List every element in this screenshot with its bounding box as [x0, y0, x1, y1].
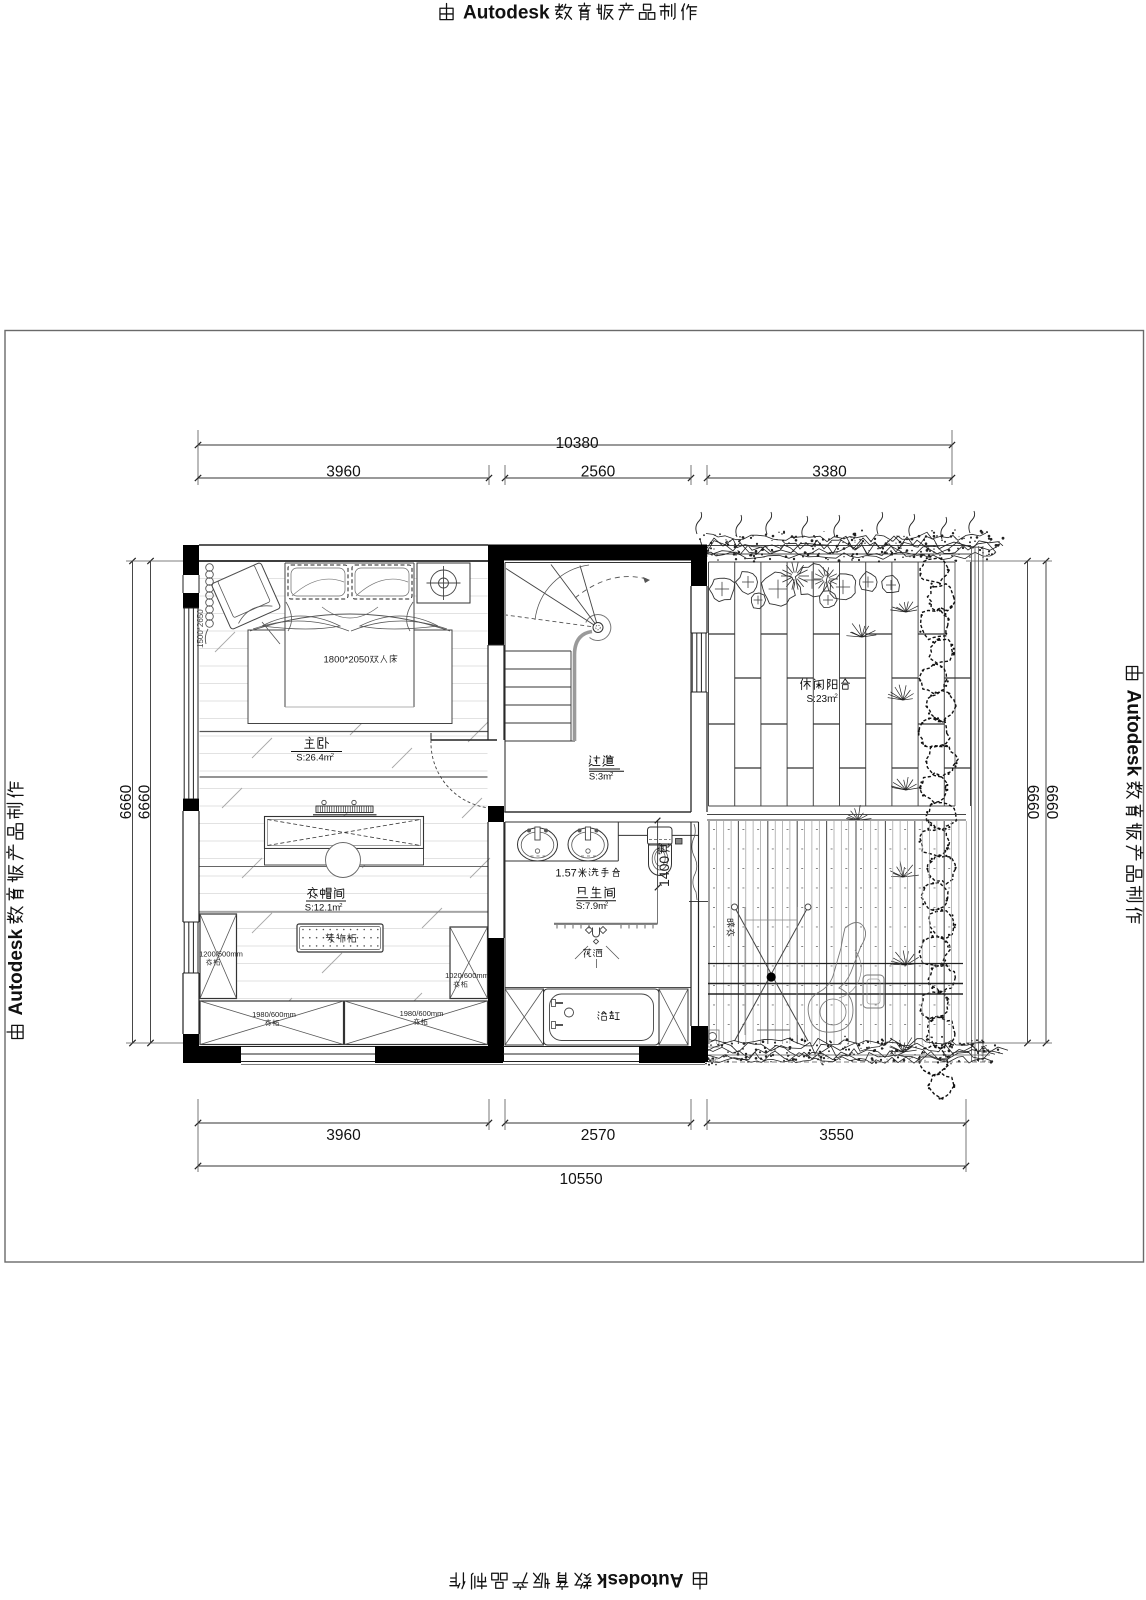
svg-text:3960: 3960 — [326, 1127, 361, 1144]
svg-text:6660: 6660 — [137, 784, 154, 819]
svg-text:S:23m: S:23m — [807, 694, 836, 705]
svg-text:2: 2 — [339, 903, 342, 909]
svg-text:6660: 6660 — [1024, 785, 1041, 820]
svg-text:2570: 2570 — [581, 1127, 616, 1144]
svg-text:3380: 3380 — [812, 464, 847, 481]
svg-text:1020/600mm: 1020/600mm — [445, 971, 489, 980]
svg-text:1980/600mm: 1980/600mm — [252, 1010, 296, 1019]
svg-text:1500*2650: 1500*2650 — [196, 609, 205, 648]
svg-text:Autodesk: Autodesk — [1122, 690, 1143, 777]
svg-text:3550: 3550 — [819, 1127, 854, 1144]
svg-text:2: 2 — [605, 901, 608, 907]
svg-text:2: 2 — [834, 693, 838, 700]
svg-text:Autodesk: Autodesk — [6, 929, 27, 1016]
svg-text:6660: 6660 — [1043, 785, 1060, 820]
svg-text:10550: 10550 — [560, 1171, 603, 1188]
svg-text:1800*2050: 1800*2050 — [324, 655, 370, 666]
svg-text:1200/500mm: 1200/500mm — [199, 950, 243, 959]
svg-text:S:26.4m: S:26.4m — [296, 753, 331, 764]
svg-text:10380: 10380 — [556, 435, 599, 452]
svg-text:1.57: 1.57 — [555, 868, 576, 880]
svg-text:6660: 6660 — [118, 784, 135, 819]
svg-text:S:12.1m: S:12.1m — [305, 903, 340, 914]
svg-text:Autodesk: Autodesk — [597, 1569, 684, 1590]
svg-text:3960: 3960 — [326, 464, 361, 481]
svg-text:2: 2 — [331, 753, 334, 759]
svg-text:2: 2 — [610, 772, 613, 778]
svg-text:Autodesk: Autodesk — [463, 3, 550, 24]
svg-text:1980/600mm: 1980/600mm — [400, 1009, 444, 1018]
svg-text:1400: 1400 — [656, 856, 672, 887]
svg-text:S:7.9m: S:7.9m — [576, 901, 606, 912]
svg-text:2560: 2560 — [581, 464, 616, 481]
svg-text:S:3m: S:3m — [589, 772, 611, 783]
